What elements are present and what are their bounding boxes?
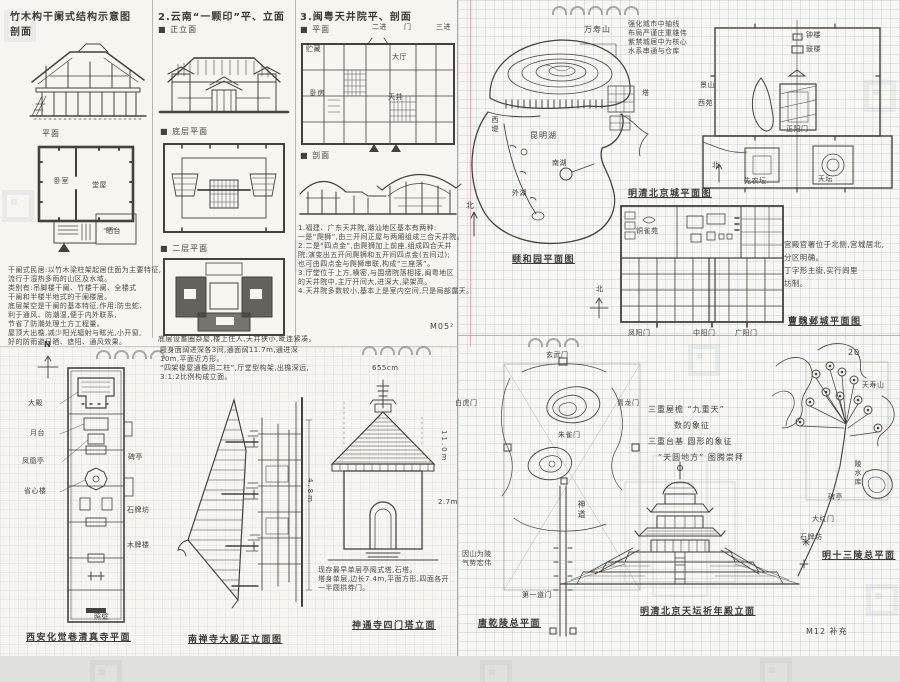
column-divider bbox=[295, 0, 296, 345]
label-zhonglou: 钟楼 bbox=[806, 30, 821, 40]
yikeyin-ground-plan-sketch bbox=[158, 138, 290, 238]
room-label-courtyard: 天井 bbox=[388, 92, 403, 102]
beijing-notes: 强化城市中轴线布局严谨庄重雄伟 紫禁城居中为核心水系串通与仓库 bbox=[628, 20, 687, 56]
label-gate-guangyang: 广阳门 bbox=[735, 328, 758, 338]
mosque-plan-sketch bbox=[58, 362, 136, 630]
label-wanshoushan: 万寿山 bbox=[584, 24, 611, 35]
binding-ring bbox=[362, 346, 377, 355]
caption-qinian-hall: 明清北京天坛祈年殿立面 bbox=[640, 604, 756, 617]
caption-simenta: 神通寺四门塔立面 bbox=[352, 618, 436, 631]
watermark-logo bbox=[760, 658, 792, 682]
binding-ring bbox=[528, 338, 543, 347]
caption-mosque: 西安化觉巷清真寺平面 bbox=[26, 630, 131, 643]
binding-ring bbox=[114, 350, 129, 359]
label-shengxinlou: 省心楼 bbox=[24, 486, 47, 496]
tiantan-note-line: 三重屋檐 “九重天” bbox=[648, 404, 725, 415]
watermark-logo bbox=[90, 660, 122, 682]
room-label-hall: 大厅 bbox=[392, 52, 407, 62]
watermark-logo bbox=[688, 344, 720, 376]
caption-nanchansi: 南禅寺大殿正立面图 bbox=[188, 632, 283, 645]
ganlan-notes: 干阑式民居:以竹木梁柱架起居住面为主要特征,流行于湿热多雨的山区及水域。 类别有… bbox=[8, 266, 161, 347]
label-pagoda: 塔 bbox=[642, 88, 650, 98]
room-label-bedroom: 卧室 bbox=[54, 176, 69, 186]
binding-ring bbox=[380, 346, 395, 355]
beijing-city-plan-sketch bbox=[695, 16, 900, 198]
simenta-elevation-sketch bbox=[318, 374, 448, 566]
plan-label: 平面 bbox=[42, 128, 60, 139]
page-mark: M05² bbox=[430, 322, 454, 331]
ground-plan-label: ■ 底层平面 bbox=[160, 126, 208, 137]
axis-label-sanjin: 三进 bbox=[436, 22, 451, 32]
label-xiannongtan: 先农坛 bbox=[744, 176, 767, 186]
label-gulou: 鼓楼 bbox=[806, 44, 821, 54]
label-qinglongmen: 青龙门 bbox=[617, 398, 640, 408]
watermark-logo bbox=[2, 190, 34, 222]
label-fenghuangting: 凤凰亭 bbox=[22, 456, 45, 466]
page-number: 20 bbox=[848, 348, 860, 357]
yecheng-notes: 宫殿官署位于北侧,宫城居北,分区明确。 丁字形主街,实行闾里坊制。 bbox=[784, 238, 884, 290]
label-nanhu: 南湖 bbox=[552, 158, 567, 168]
label-kunminghu: 昆明湖 bbox=[530, 130, 557, 141]
tiantan-note-line: 数的象征 bbox=[674, 420, 710, 431]
dimension-4-8m: 4.8m bbox=[306, 478, 314, 504]
caption-summer-palace: 颐和园平面图 bbox=[512, 252, 575, 265]
dimension-11m: 11.0m bbox=[440, 430, 448, 462]
label-xuanwumen: 玄武门 bbox=[546, 350, 569, 360]
label-shipaifang: 石牌坊 bbox=[127, 505, 150, 515]
label-beiting: 碑亭 bbox=[828, 492, 843, 502]
upper-plan-label: ■ 二层平面 bbox=[160, 243, 208, 254]
tiantan-note-line: 三重台基 圆形的象征 bbox=[648, 436, 733, 447]
label-tiantan: 天坛 bbox=[818, 174, 833, 184]
caption-yecheng: 曹魏邺城平面图 bbox=[788, 314, 862, 327]
label-dahongmen: 大红门 bbox=[812, 514, 835, 524]
axis-label-men: 门 bbox=[404, 22, 412, 32]
corner-page-mark: M12 补充 bbox=[806, 626, 848, 637]
label-gate-zhongyang: 中阳门 bbox=[693, 328, 716, 338]
qinian-hall-elevation-sketch bbox=[555, 452, 805, 602]
compass-north-letter: N bbox=[44, 340, 52, 349]
label-beiting: 碑亭 bbox=[128, 452, 143, 462]
room-label-hall: 堂屋 bbox=[92, 180, 107, 190]
watermark-logo bbox=[480, 660, 512, 682]
label-xidi: 西堤 bbox=[490, 116, 500, 134]
elevation-label: ■ 正立面 bbox=[158, 24, 197, 35]
qianling-side-note: 因山为陵气势宏伟 bbox=[462, 550, 492, 568]
binding-ring bbox=[564, 338, 579, 347]
compass-north: 北 bbox=[596, 284, 604, 294]
binding-ring bbox=[546, 338, 561, 347]
north-arrow-icon bbox=[36, 352, 60, 382]
tianjing-section-sketch bbox=[298, 158, 458, 220]
binding-ring bbox=[552, 6, 567, 15]
caption-qianling: 唐乾陵总平面 bbox=[478, 616, 541, 629]
label-baihumen: 白虎门 bbox=[455, 398, 478, 408]
nanchansi-elevation-sketch bbox=[162, 390, 314, 618]
label-yuetai: 月台 bbox=[30, 428, 45, 438]
room-label-terrace: 晒台 bbox=[106, 226, 121, 236]
stilt-house-section-sketch bbox=[28, 38, 150, 124]
yikeyin-note: 底层设畜圈杂屋,楼上住人,天井狭小,毗连紧凑。 bbox=[158, 334, 316, 344]
sketch-title-yikeyin: 2.云南“一颗印”平、立面 bbox=[158, 8, 285, 23]
axis-label-erjin: 二进 bbox=[372, 22, 387, 32]
label-reservoir: 陵水库 bbox=[853, 460, 863, 487]
sketch-title-ganlan: 竹木构干阑式结构示意图 bbox=[10, 8, 131, 23]
caption-shisanling: 明十三陵总平面 bbox=[822, 548, 896, 561]
caption-beijing: 明清北京城平面图 bbox=[628, 186, 712, 199]
dimension-655cm: 655cm bbox=[372, 364, 399, 372]
label-zhengyangmen: 正阳门 bbox=[786, 124, 809, 134]
label-first-gate: 第一道门 bbox=[522, 590, 552, 600]
label-zhuquemen: 朱雀门 bbox=[558, 430, 581, 440]
binding-ring bbox=[570, 6, 585, 15]
label-xiyuan: 西苑 bbox=[698, 98, 713, 108]
stilt-house-plan-sketch bbox=[34, 142, 142, 260]
binding-ring bbox=[624, 6, 639, 15]
compass-north: 北 bbox=[466, 200, 475, 211]
label-tongqueyuan: 铜雀苑 bbox=[636, 226, 659, 236]
binding-ring bbox=[416, 346, 431, 355]
notebook-collage: 竹木构干阑式结构示意图 剖面 平面 卧 bbox=[0, 0, 900, 682]
sketch-title-tianjing: 3.闽粤天井院平、剖面 bbox=[300, 8, 412, 23]
label-waihu: 外湖 bbox=[512, 188, 527, 198]
compass-north: 北 bbox=[712, 160, 720, 170]
label-mupailou: 木牌楼 bbox=[127, 540, 150, 550]
binding-ring bbox=[606, 6, 621, 15]
binding-ring bbox=[96, 350, 111, 359]
label-zhaobi: 照壁 bbox=[94, 612, 109, 622]
tianjing-notes: 1.福建、广东天井院,潮汕地区基本有两种:一是“爬狮”,由三开间正屋与两厢组成三… bbox=[298, 224, 474, 296]
room-label-storage: 贮藏 bbox=[306, 44, 321, 54]
binding-ring bbox=[132, 350, 147, 359]
nanchansi-notes: 殿身面阔进深各3间,通面阔11.7m,通进深10m,平面近方形。 “四架椽屋通檐… bbox=[160, 346, 309, 382]
label-gate-fengyang: 凤阳门 bbox=[628, 328, 651, 338]
label-tianshoushan: 天寿山 bbox=[862, 380, 885, 390]
section-label: 剖面 bbox=[10, 23, 32, 38]
north-arrow-icon bbox=[588, 292, 610, 322]
dimension-2-7m: 2.7m bbox=[438, 498, 458, 506]
binding-ring bbox=[588, 6, 603, 15]
label-jingshan: 景山 bbox=[700, 80, 715, 90]
yikeyin-elevation-sketch bbox=[158, 40, 290, 118]
yikeyin-upper-plan-sketch bbox=[158, 255, 290, 339]
label-dadian: 大殿 bbox=[28, 398, 43, 408]
room-label-bedroom: 卧房 bbox=[310, 88, 325, 98]
yecheng-plan-sketch bbox=[615, 200, 790, 332]
simenta-notes: 现存最早单层亭阁式塔,石塔。塔身单层,边长7.4m,平面方形,四面各开 一半圆拱… bbox=[318, 566, 449, 593]
binding-ring bbox=[398, 346, 413, 355]
watermark-logo bbox=[866, 584, 898, 616]
